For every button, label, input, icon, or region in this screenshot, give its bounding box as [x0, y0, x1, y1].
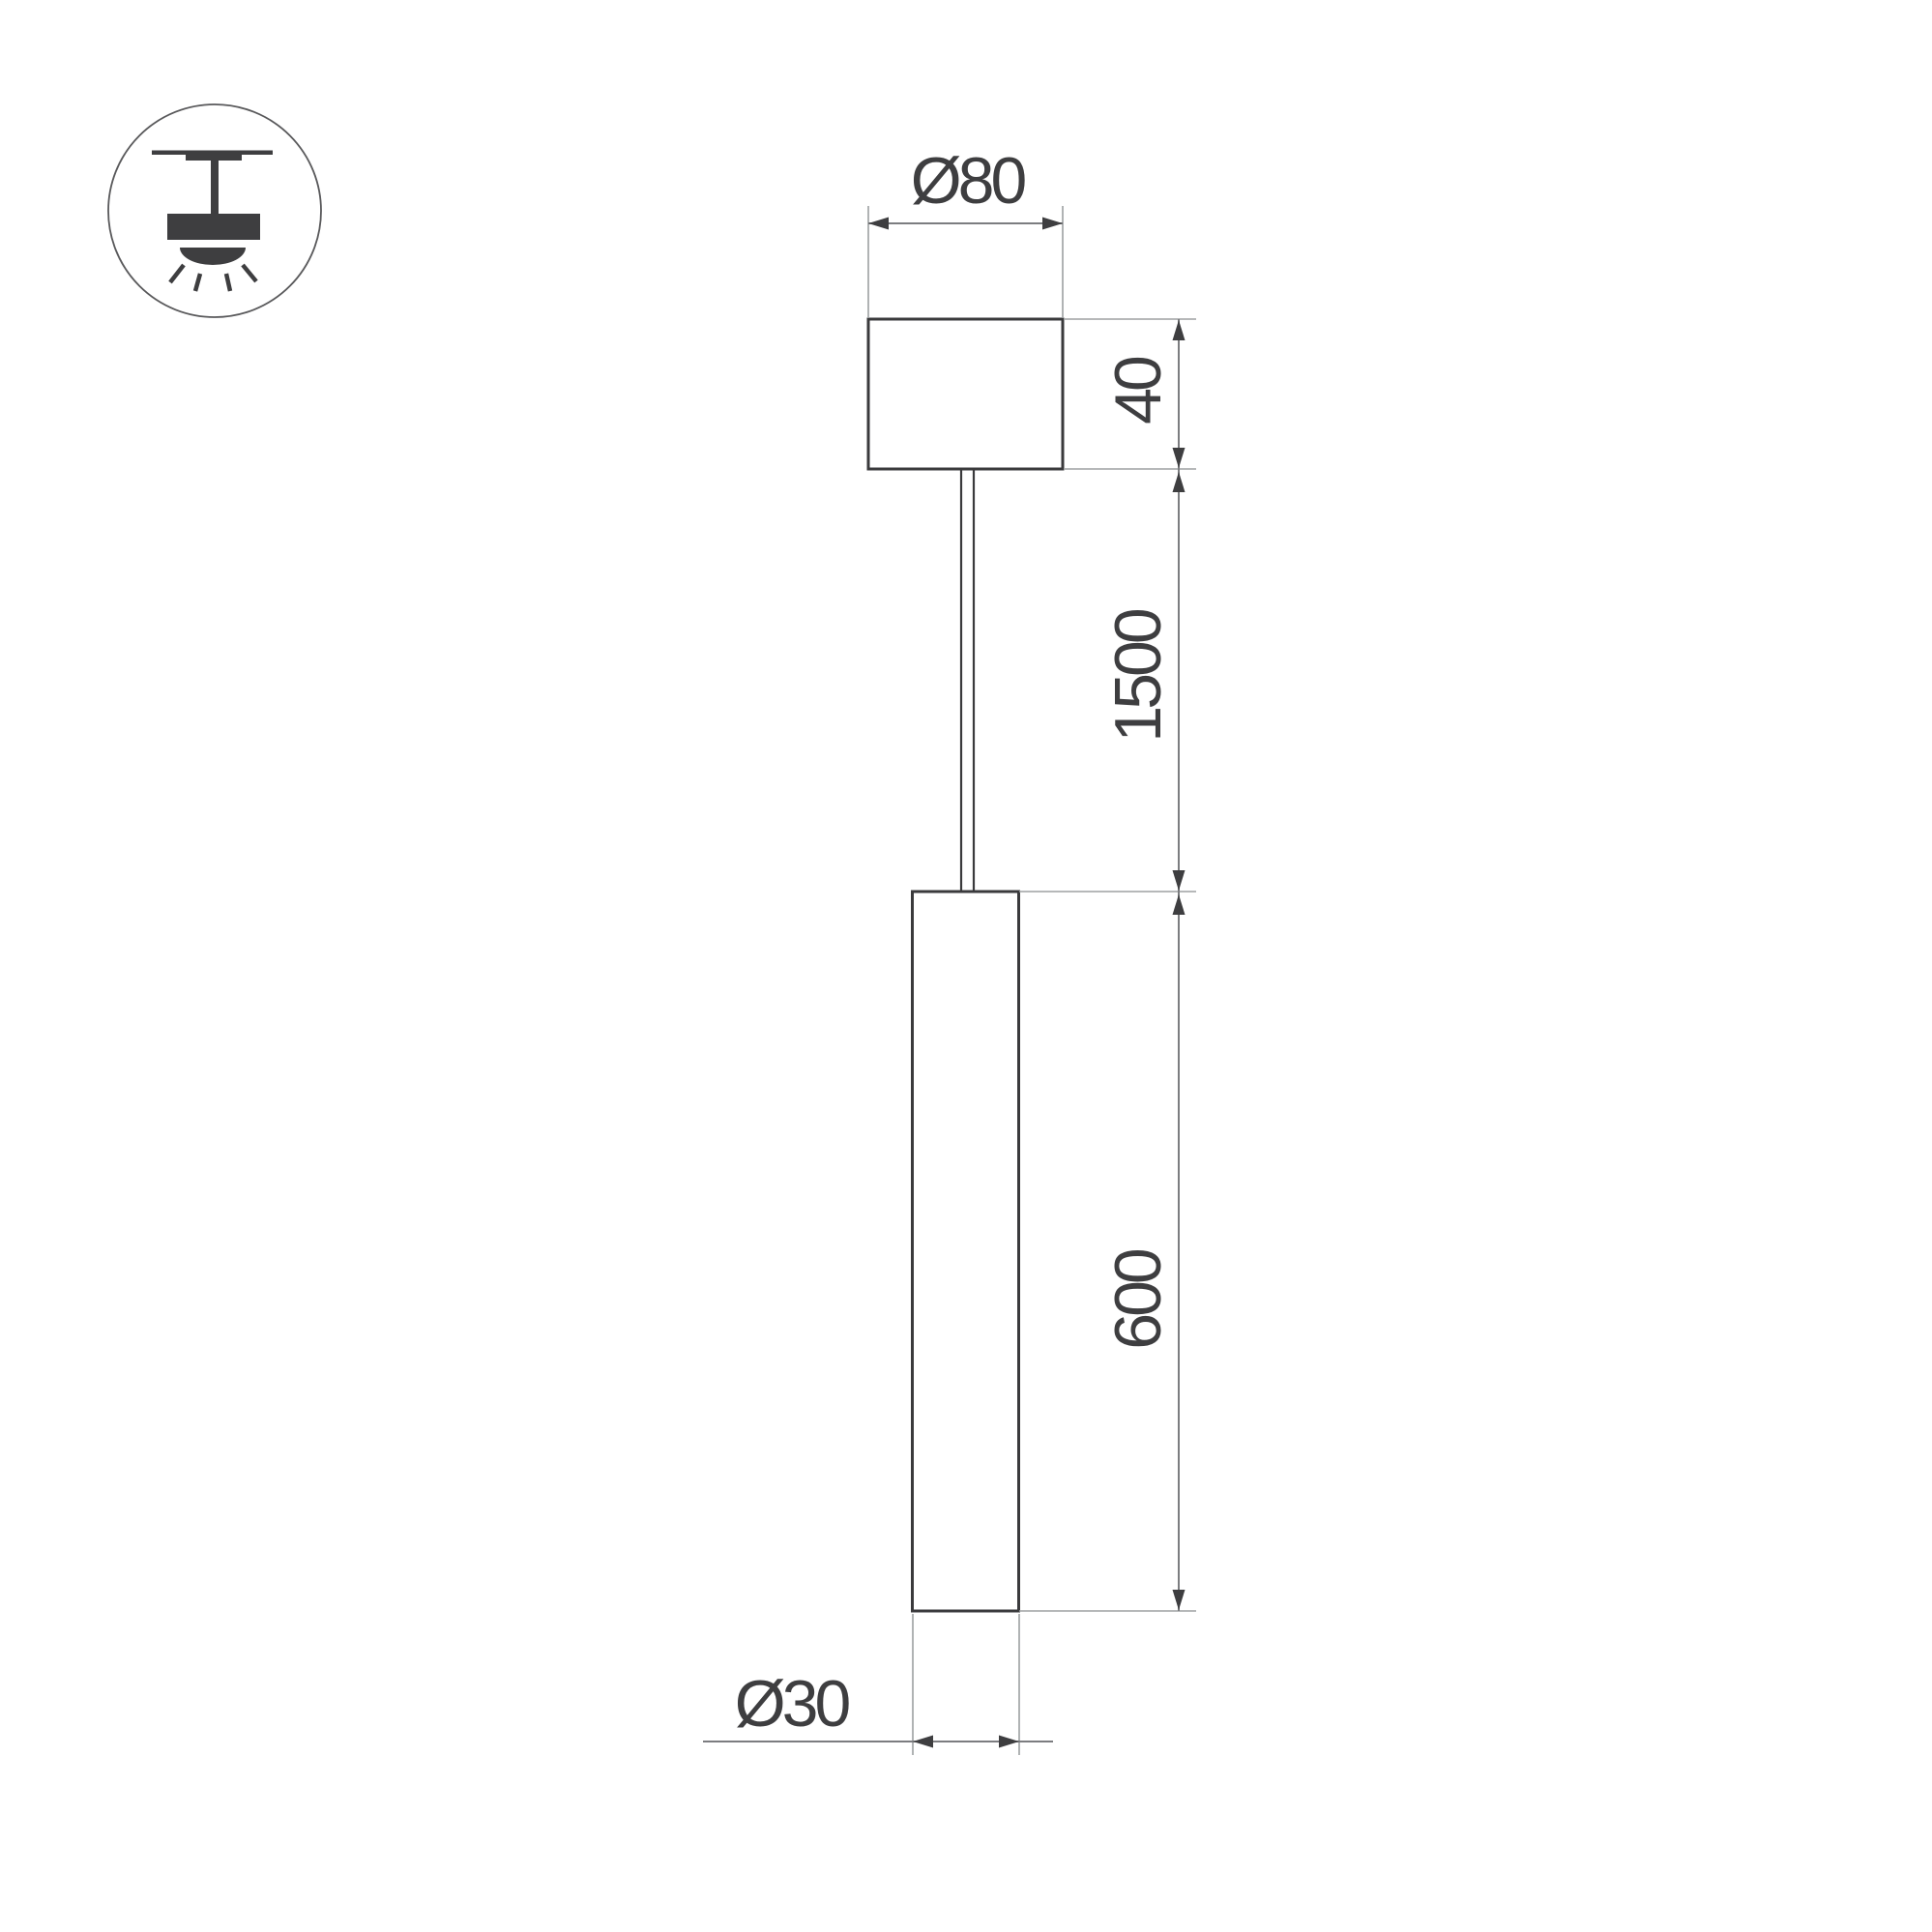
light-rays	[170, 265, 256, 291]
tube-length-label: 600	[1105, 1251, 1171, 1349]
canopy-diameter-label: Ø80	[911, 148, 1024, 214]
drawing-page: Ø80 40 1500 600 Ø30	[0, 0, 1932, 1932]
tube-diameter-label: Ø30	[735, 1671, 848, 1737]
pendant-ceiling-light-icon	[108, 104, 321, 317]
tube-outline	[913, 892, 1019, 1611]
canopy-height-label: 40	[1105, 359, 1171, 424]
pendant-stem	[211, 157, 219, 215]
suspension-cable	[961, 470, 974, 892]
lamp-body	[167, 214, 260, 240]
suspension-length-label: 1500	[1105, 611, 1171, 742]
technical-drawing-canvas	[0, 0, 1932, 1932]
lamp-diffuser	[180, 248, 246, 265]
canopy-outline	[868, 319, 1063, 469]
ceiling-line	[152, 151, 273, 156]
